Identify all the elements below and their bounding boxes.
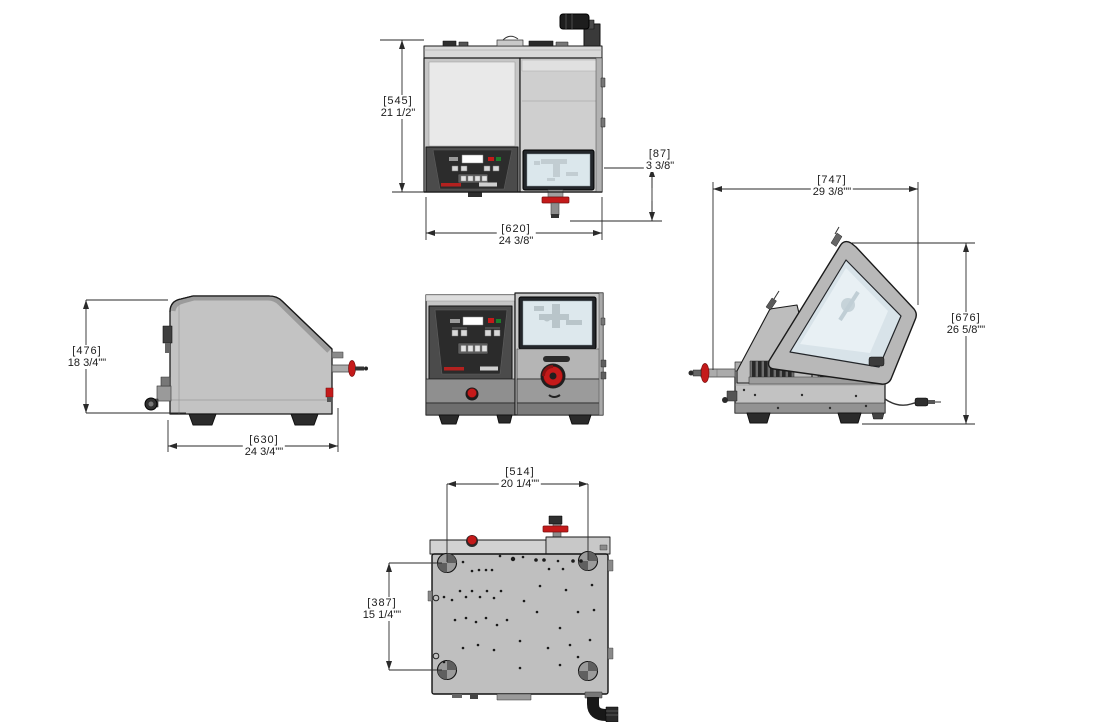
green-indicator <box>496 319 501 323</box>
dimension-open-lid-height: [676] 26 5/8"" <box>945 312 987 336</box>
foot <box>189 414 216 425</box>
red-indicator <box>488 157 494 161</box>
dimension-bottom-depth: [387] 15 1/4"" <box>361 597 403 621</box>
control-panel <box>426 147 518 192</box>
dimension-mm: [676] <box>947 312 985 324</box>
foot <box>838 413 861 423</box>
viewing-window <box>523 150 594 190</box>
dimension-inch: 21 1/2" <box>381 107 416 119</box>
emergency-stop-button <box>466 535 478 547</box>
dimension-inch: 18 3/4"" <box>68 357 106 369</box>
foot <box>747 413 770 423</box>
dimension-bottom-width: [514] 20 1/4"" <box>499 466 541 490</box>
dimension-open-lid-depth: [747] 29 3/8"" <box>811 174 853 198</box>
drain-elbow <box>585 692 618 722</box>
brand-mark-red <box>444 367 464 371</box>
brand-mark-red <box>441 183 461 187</box>
power-plug <box>915 398 928 406</box>
positioning-rod <box>689 364 736 383</box>
lid-handle <box>503 36 518 40</box>
view-front-top <box>424 14 605 218</box>
hinge-latch <box>869 357 884 366</box>
green-indicator <box>496 157 501 161</box>
drain-spigot-top <box>543 516 568 540</box>
red-indicator <box>488 318 494 323</box>
dimension-drain-height: [87] 3 3/8" <box>644 148 676 172</box>
handwheel <box>541 364 566 389</box>
emergency-stop-button <box>466 388 479 401</box>
dimension-mm: [620] <box>499 223 534 235</box>
machine-drawing <box>0 0 1102 722</box>
dimension-inch: 24 3/8" <box>499 235 534 247</box>
brand-mark-light <box>479 183 497 187</box>
dimension-inch: 24 3/4"" <box>245 446 283 458</box>
dimension-inch: 20 1/4"" <box>501 478 539 490</box>
machine-profile <box>170 296 332 414</box>
foot <box>439 415 459 424</box>
view-bottom <box>428 516 618 722</box>
view-side-left <box>145 296 368 425</box>
foot <box>497 415 512 423</box>
display <box>462 155 483 163</box>
dimension-inch: 26 5/8"" <box>947 324 985 336</box>
dimension-mm: [87] <box>646 148 674 160</box>
foot-pad <box>579 662 598 681</box>
dimension-mm: [545] <box>381 95 416 107</box>
control-panel <box>429 306 512 379</box>
foot <box>291 414 318 425</box>
door-handle <box>543 356 570 362</box>
drawing-page: [545] 21 1/2" [87] 3 3/8" [620] 24 3/8" … <box>0 0 1102 722</box>
dimension-mm: [630] <box>245 434 283 446</box>
hose-fittings <box>145 326 172 410</box>
dimension-inch: 29 3/8"" <box>813 186 851 198</box>
foot <box>569 415 591 424</box>
dimension-front-height: [545] 21 1/2" <box>379 95 418 119</box>
view-side-open-lid <box>689 227 942 423</box>
dimension-mm: [747] <box>813 174 851 186</box>
view-front-middle <box>426 293 606 424</box>
dimension-inch: 15 1/4"" <box>363 609 401 621</box>
dimension-side-height: [476] 18 3/4"" <box>66 345 108 369</box>
dimension-front-width: [620] 24 3/8" <box>497 223 536 247</box>
dimension-side-depth: [630] 24 3/4"" <box>243 434 285 458</box>
positioning-rod <box>332 352 368 377</box>
drain-spigot <box>542 190 569 218</box>
dimension-mm: [387] <box>363 597 401 609</box>
brand-mark-light <box>480 367 498 371</box>
viewing-window <box>519 297 596 349</box>
dimension-mm: [476] <box>68 345 106 357</box>
display <box>463 317 483 325</box>
dimension-inch: 3 3/8" <box>646 160 674 172</box>
dimension-mm: [514] <box>501 466 539 478</box>
